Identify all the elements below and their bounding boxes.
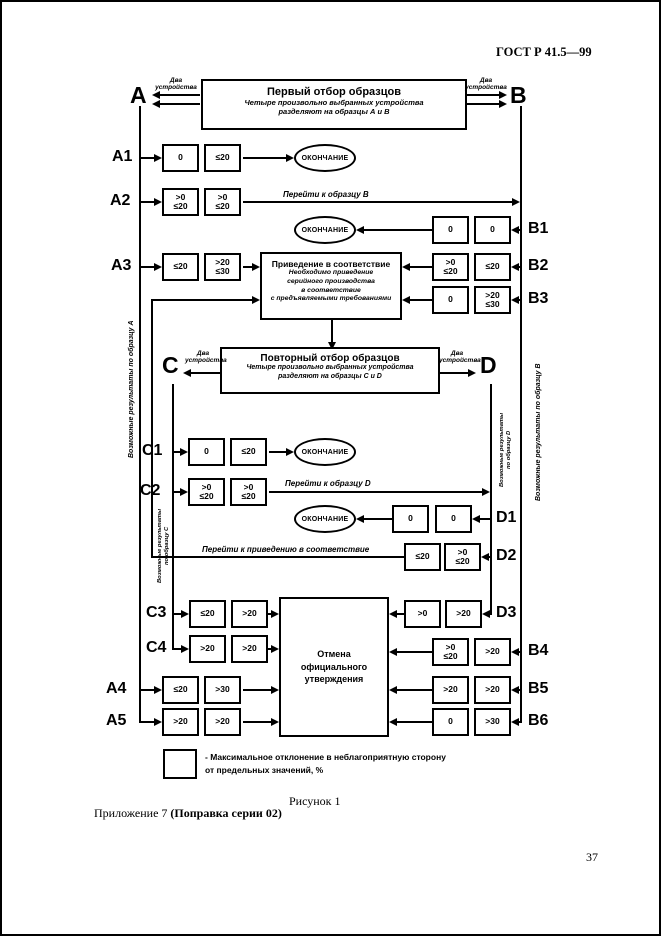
- row-a5-label: A5: [106, 713, 126, 729]
- condition-box-c2-2: >0≤20: [230, 478, 267, 506]
- condition-value: ≤20: [443, 267, 457, 276]
- condition-value: ≤20: [485, 262, 499, 271]
- arrowhead-left: [389, 610, 397, 618]
- arrowhead-left: [152, 91, 160, 99]
- reselection-sub2: разделяют на образцы C и D: [222, 373, 438, 382]
- row-a3-label: A3: [111, 258, 131, 274]
- arrowhead-left: [389, 648, 397, 656]
- legend-box: [163, 749, 197, 779]
- row-c1-label: C1: [142, 443, 162, 459]
- connector-line: [160, 103, 200, 105]
- connector-line: [397, 651, 432, 653]
- arrowhead-right: [180, 448, 188, 456]
- arrowhead-left: [511, 686, 519, 694]
- two-devices-line2: устройства: [439, 357, 475, 364]
- connector-line: [243, 201, 512, 203]
- arrowhead-left: [472, 515, 480, 523]
- condition-value: >20: [200, 644, 214, 653]
- two-devices-line2: устройства: [185, 357, 221, 364]
- condition-box-b1-2: 0: [474, 216, 511, 244]
- arrowhead-right: [499, 91, 507, 99]
- condition-box-b1-1: 0: [432, 216, 469, 244]
- results-label-c-1: Возможные результаты: [157, 500, 164, 592]
- condition-box-b3-2: >20≤30: [474, 286, 511, 314]
- arrowhead-left: [482, 610, 490, 618]
- condition-box-a3-2: >20≤30: [204, 253, 241, 281]
- condition-value: >20: [485, 647, 499, 656]
- row-b2-label: B2: [528, 258, 548, 274]
- condition-value: ≤20: [241, 492, 255, 501]
- arrowhead-right: [154, 154, 162, 162]
- condition-box-c1-1: 0: [188, 438, 225, 466]
- appendix-text: Приложение 7: [94, 806, 170, 820]
- connector-line: [480, 518, 490, 520]
- condition-box-a4-2: >30: [204, 676, 241, 704]
- condition-value: ≤20: [415, 552, 429, 561]
- condition-value: 0: [448, 295, 453, 304]
- condition-box-b5-2: >20: [474, 676, 511, 704]
- arrowhead-left: [402, 263, 410, 271]
- condition-box-d3-1: >0: [404, 600, 441, 628]
- connector-line: [364, 229, 432, 231]
- row-d2-label: D2: [496, 548, 516, 564]
- arrowhead-right: [180, 488, 188, 496]
- condition-box-a5-2: >20: [204, 708, 241, 736]
- arrowhead-right: [252, 263, 260, 271]
- condition-value: 0: [448, 717, 453, 726]
- arrowhead-right: [499, 100, 507, 108]
- withdrawal-line1: Отмена: [317, 648, 351, 661]
- condition-box-b5-1: >20: [432, 676, 469, 704]
- connector-line: [397, 613, 404, 615]
- condition-box-b2-2: ≤20: [474, 253, 511, 281]
- arrowhead-right: [181, 610, 189, 618]
- connector-line: [160, 94, 200, 96]
- row-c3-label: C3: [146, 605, 166, 621]
- arrowhead-right: [252, 296, 260, 304]
- condition-box-c4-2: >20: [231, 635, 268, 663]
- row-b4-label: B4: [528, 643, 548, 659]
- condition-box-d2-1: ≤20: [404, 543, 441, 571]
- arrowhead-left: [511, 226, 519, 234]
- condition-value: 0: [178, 153, 183, 162]
- arrowhead-left: [389, 686, 397, 694]
- condition-value: >20: [173, 717, 187, 726]
- connector-line: [141, 157, 154, 159]
- arrowhead-right: [286, 448, 294, 456]
- arrowhead-left: [356, 226, 364, 234]
- transition-to-conformity-label: Перейти к приведению в соответствие: [202, 545, 369, 554]
- reselection-sub1: Четыре произвольно выбранных устройства: [222, 364, 438, 373]
- condition-value: ≤20: [199, 492, 213, 501]
- results-label-d-2: по образцу D: [506, 404, 513, 496]
- connector-line: [243, 721, 271, 723]
- page-header: ГОСТ Р 41.5—99: [496, 45, 592, 60]
- connector-line: [467, 94, 500, 96]
- conformity-sub2: серийного производства: [262, 278, 400, 287]
- connector-line: [410, 266, 432, 268]
- arrowhead-right: [271, 686, 279, 694]
- two-devices-label-c: Два устройства: [185, 350, 221, 364]
- two-devices-line2: устройства: [154, 84, 198, 91]
- end-oval-a1: ОКОНЧАНИЕ: [294, 144, 356, 172]
- condition-value: 0: [408, 514, 413, 523]
- condition-box-b4-1: >0≤20: [432, 638, 469, 666]
- arrowhead-right: [181, 645, 189, 653]
- sample-c-label: C: [162, 354, 179, 377]
- condition-value: ≤20: [173, 262, 187, 271]
- condition-box-c4-1: >20: [189, 635, 226, 663]
- row-c2-label: C2: [140, 483, 160, 499]
- sample-d-line: [490, 384, 492, 615]
- arrowhead-right: [468, 369, 476, 377]
- connector-line: [174, 648, 181, 650]
- withdrawal-box: Отмена официального утверждения: [279, 597, 389, 737]
- condition-value: ≤20: [200, 609, 214, 618]
- row-d3-label: D3: [496, 605, 516, 621]
- condition-value: 0: [451, 514, 456, 523]
- condition-value: ≤30: [215, 267, 229, 276]
- connector-line: [410, 299, 432, 301]
- transition-to-d-label: Перейти к образцу D: [285, 479, 371, 488]
- condition-box-c1-2: ≤20: [230, 438, 267, 466]
- row-b6-label: B6: [528, 713, 548, 729]
- condition-value: ≤20: [173, 202, 187, 211]
- condition-value: ≤20: [241, 447, 255, 456]
- connector-line: [440, 372, 469, 374]
- condition-box-d2-2: >0≤20: [444, 543, 481, 571]
- connector-line: [243, 689, 271, 691]
- sample-c-line: [172, 384, 174, 650]
- sample-b-label: B: [510, 84, 527, 107]
- connector-line: [141, 721, 154, 723]
- arrowhead-left: [511, 263, 519, 271]
- end-oval-b1: ОКОНЧАНИЕ: [294, 216, 356, 244]
- withdrawal-line2: официального: [301, 661, 367, 674]
- condition-box-c3-1: ≤20: [189, 600, 226, 628]
- sample-a-label: A: [130, 84, 147, 107]
- condition-value: ≤30: [485, 300, 499, 309]
- arrowhead-left: [152, 100, 160, 108]
- connector-line: [141, 689, 154, 691]
- connector-line: [243, 157, 286, 159]
- arrowhead-right: [271, 645, 279, 653]
- arrowhead-left: [356, 515, 364, 523]
- two-devices-label-b: Два устройства: [464, 77, 508, 91]
- condition-box-c2-1: >0≤20: [188, 478, 225, 506]
- condition-box-a1-2: ≤20: [204, 144, 241, 172]
- connector-line: [174, 613, 181, 615]
- condition-value: >20: [242, 644, 256, 653]
- arrowhead-left: [389, 718, 397, 726]
- arrowhead-left: [511, 648, 519, 656]
- condition-box-b4-2: >20: [474, 638, 511, 666]
- condition-value: >30: [485, 717, 499, 726]
- condition-value: ≤20: [215, 153, 229, 162]
- condition-value: >20: [215, 717, 229, 726]
- document-page: ГОСТ Р 41.5—99 Первый отбор образцов Чет…: [0, 0, 661, 936]
- connector-line: [269, 491, 482, 493]
- condition-box-a2-1: >0≤20: [162, 188, 199, 216]
- condition-box-c3-2: >20: [231, 600, 268, 628]
- arrowhead-right: [482, 488, 490, 496]
- connector-line: [467, 103, 500, 105]
- connector-line: [141, 201, 154, 203]
- row-b3-label: B3: [528, 291, 548, 307]
- results-label-c-2: по образцу С: [164, 500, 171, 592]
- row-d1-label: D1: [496, 510, 516, 526]
- connector-line: [190, 372, 220, 374]
- condition-box-a4-1: ≤20: [162, 676, 199, 704]
- first-selection-sub2: разделяют на образцы А и В: [203, 107, 465, 116]
- arrowhead-left: [481, 553, 489, 561]
- row-a4-label: A4: [106, 681, 126, 697]
- figure-caption: Рисунок 1: [289, 794, 341, 809]
- legend-line1: - Максимальное отклонение в неблагоприят…: [205, 751, 505, 764]
- page-number: 37: [586, 850, 598, 865]
- connector-line: [153, 299, 252, 301]
- condition-value: 0: [204, 447, 209, 456]
- condition-value: >30: [215, 685, 229, 694]
- end-oval-c1: ОКОНЧАНИЕ: [294, 438, 356, 466]
- first-selection-title: Первый отбор образцов: [203, 86, 465, 98]
- results-label-a: Возможные результаты по образцу А: [128, 307, 136, 472]
- arrowhead-right: [154, 686, 162, 694]
- condition-box-a2-2: >0≤20: [204, 188, 241, 216]
- results-label-d-1: Возможные результаты: [499, 404, 506, 496]
- arrowhead-left: [511, 296, 519, 304]
- condition-box-a5-1: >20: [162, 708, 199, 736]
- reselection-box: Повторный отбор образцов Четыре произвол…: [220, 347, 440, 394]
- row-c4-label: C4: [146, 640, 166, 656]
- reselection-title: Повторный отбор образцов: [222, 353, 438, 364]
- arrowhead-left: [511, 718, 519, 726]
- condition-value: ≤20: [215, 202, 229, 211]
- condition-box-d3-2: >20: [445, 600, 482, 628]
- condition-box-d1-2: 0: [435, 505, 472, 533]
- arrowhead-left: [183, 369, 191, 377]
- connector-line: [141, 266, 154, 268]
- condition-box-a1-1: 0: [162, 144, 199, 172]
- condition-box-b3-1: 0: [432, 286, 469, 314]
- legend-line2: от предельных значений, %: [205, 764, 505, 777]
- connector-line: [364, 518, 392, 520]
- results-label-b: Возможные результаты по образцу В: [535, 357, 543, 507]
- first-selection-sub1: Четыре произвольно выбранных устройства: [203, 98, 465, 107]
- withdrawal-line3: утверждения: [305, 673, 364, 686]
- conformity-sub1: Необходимо приведение: [262, 269, 400, 278]
- connector-line: [331, 320, 333, 343]
- row-a2-label: A2: [110, 193, 130, 209]
- two-devices-label-d: Два устройства: [439, 350, 475, 364]
- condition-value: >20: [485, 685, 499, 694]
- sample-a-line: [139, 106, 141, 723]
- row-a1-label: A1: [112, 149, 132, 165]
- appendix-bold-text: (Поправка серии 02): [170, 806, 281, 820]
- arrowhead-right: [271, 610, 279, 618]
- arrowhead-right: [512, 198, 520, 206]
- connector-line: [152, 556, 404, 558]
- connector-line: [397, 721, 432, 723]
- arrowhead-right: [154, 263, 162, 271]
- connector-line: [269, 451, 286, 453]
- arrowhead-right: [154, 718, 162, 726]
- arrowhead-right: [154, 198, 162, 206]
- condition-value: >20: [443, 685, 457, 694]
- conformity-title: Приведение в соответствие: [262, 259, 400, 269]
- condition-value: 0: [490, 225, 495, 234]
- condition-value: ≤20: [455, 557, 469, 566]
- condition-value: ≤20: [173, 685, 187, 694]
- two-devices-label-a: Два устройства: [154, 77, 198, 91]
- condition-box-b6-2: >30: [474, 708, 511, 736]
- sample-d-label: D: [480, 354, 497, 377]
- conformity-box: Приведение в соответствие Необходимо при…: [260, 252, 402, 320]
- condition-value: ≤20: [443, 652, 457, 661]
- condition-box-b6-1: 0: [432, 708, 469, 736]
- condition-value: >20: [242, 609, 256, 618]
- arrowhead-right: [271, 718, 279, 726]
- end-oval-d1: ОКОНЧАНИЕ: [294, 505, 356, 533]
- sample-b-line: [520, 106, 522, 723]
- condition-value: >0: [418, 609, 428, 618]
- conformity-sub4: с предъявляемыми требованиями: [262, 295, 400, 304]
- condition-box-b2-1: >0≤20: [432, 253, 469, 281]
- connector-line: [243, 266, 252, 268]
- condition-value: >20: [456, 609, 470, 618]
- row-b1-label: B1: [528, 221, 548, 237]
- first-selection-box: Первый отбор образцов Четыре произвольно…: [201, 79, 467, 130]
- appendix-note: Приложение 7 (Поправка серии 02): [94, 806, 282, 821]
- condition-box-a3-1: ≤20: [162, 253, 199, 281]
- legend-text: - Максимальное отклонение в неблагоприят…: [205, 751, 505, 777]
- arrowhead-left: [402, 296, 410, 304]
- connector-line: [397, 689, 432, 691]
- return-loop-line: [151, 299, 153, 558]
- row-b5-label: B5: [528, 681, 548, 697]
- arrowhead-right: [286, 154, 294, 162]
- transition-to-b-label: Перейти к образцу В: [283, 190, 369, 199]
- condition-value: 0: [448, 225, 453, 234]
- condition-box-d1-1: 0: [392, 505, 429, 533]
